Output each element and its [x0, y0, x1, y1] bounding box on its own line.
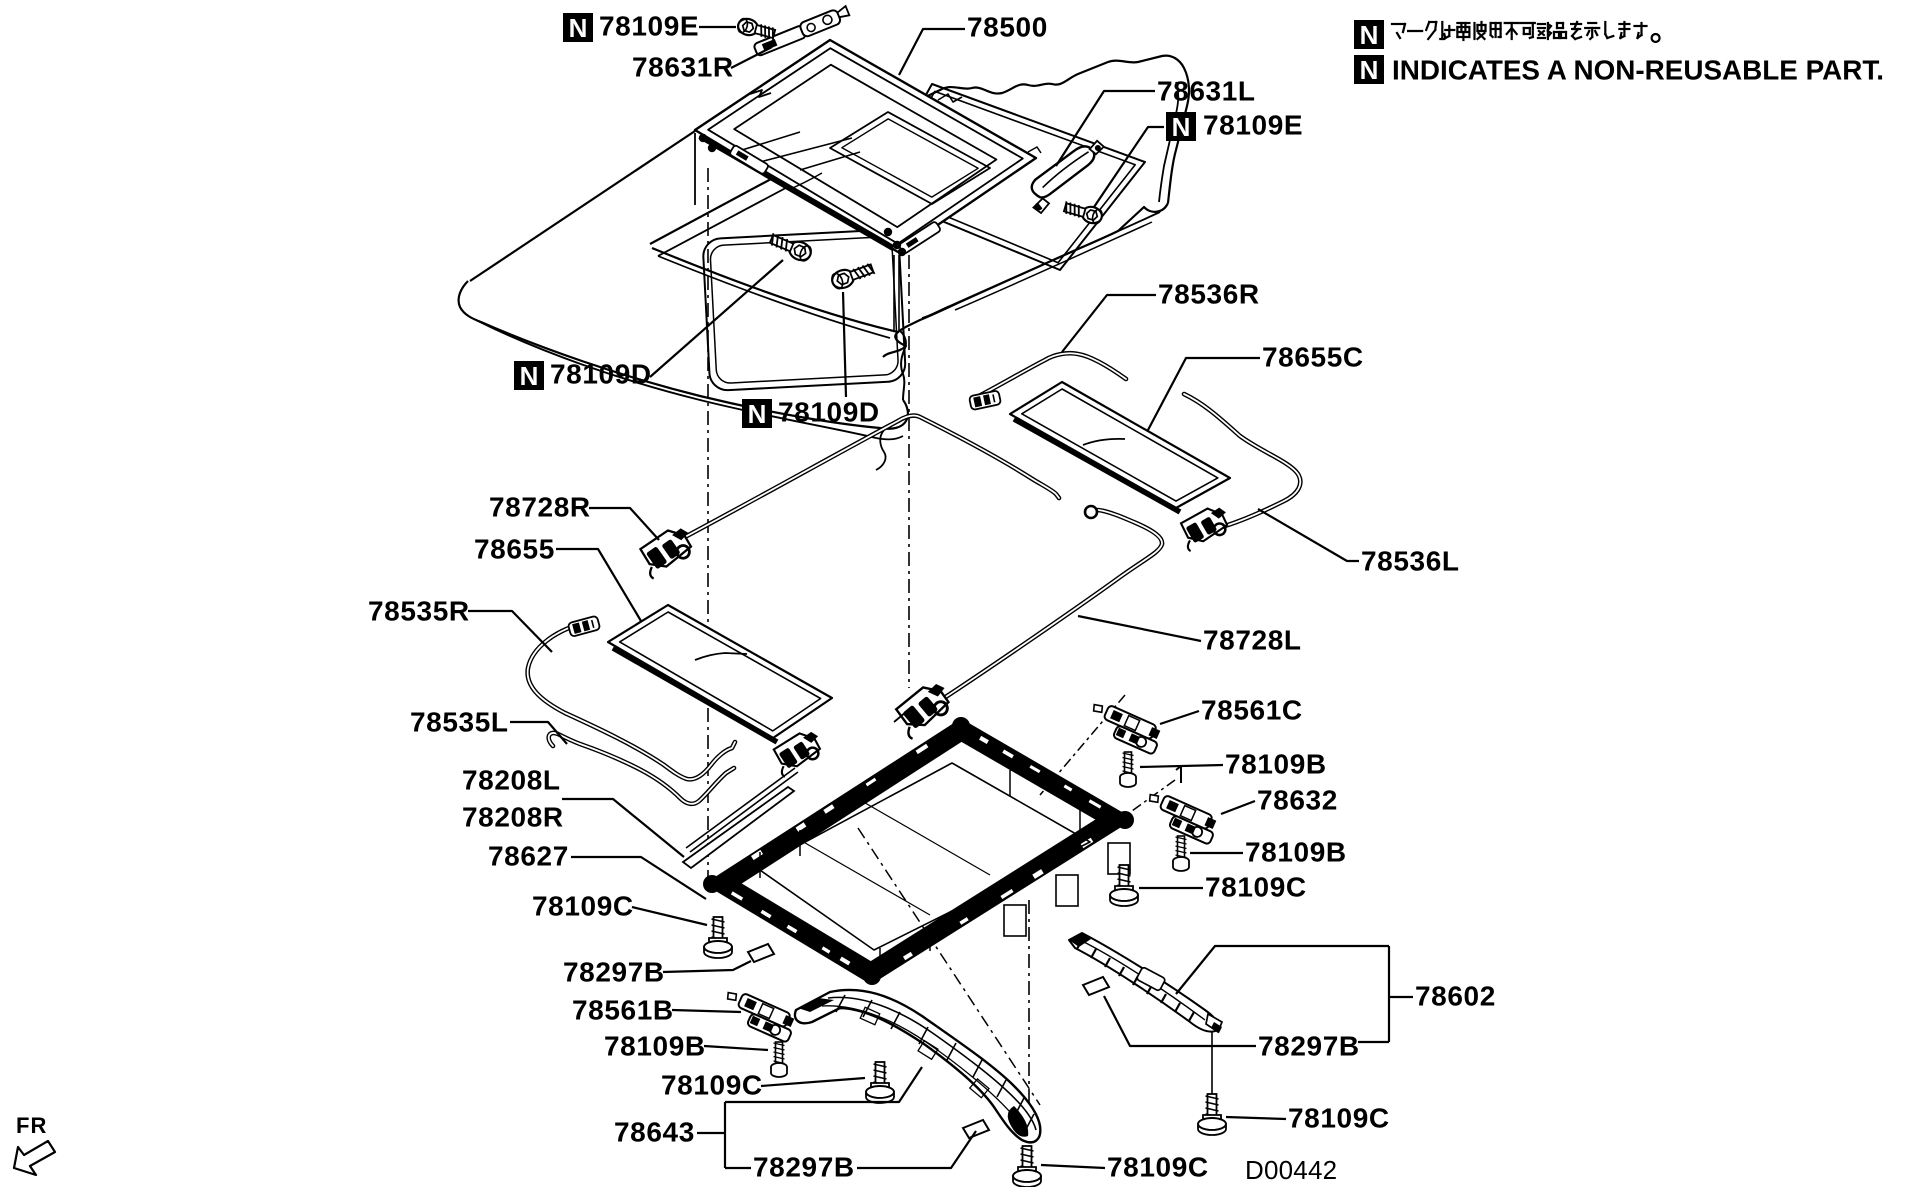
svg-text:78109B: 78109B: [604, 1031, 706, 1062]
svg-text:78109E: 78109E: [1203, 110, 1303, 141]
svg-text:78208L: 78208L: [462, 765, 561, 796]
svg-text:78535R: 78535R: [368, 596, 470, 627]
svg-text:78109E: 78109E: [599, 11, 699, 42]
svg-text:78728R: 78728R: [489, 492, 591, 523]
svg-text:78643: 78643: [614, 1117, 695, 1148]
svg-text:78602: 78602: [1415, 981, 1496, 1012]
svg-text:78631R: 78631R: [632, 52, 734, 83]
svg-text:INDICATES A NON-REUSABLE PART.: INDICATES A NON-REUSABLE PART.: [1392, 55, 1884, 86]
svg-text:78109B: 78109B: [1225, 749, 1327, 780]
svg-text:78109B: 78109B: [1245, 837, 1347, 868]
svg-text:78561B: 78561B: [572, 995, 674, 1026]
svg-text:78109C: 78109C: [661, 1070, 763, 1101]
svg-text:78561C: 78561C: [1201, 695, 1303, 726]
svg-text:N: N: [1172, 112, 1191, 142]
svg-text:78536R: 78536R: [1158, 279, 1260, 310]
svg-text:78208R: 78208R: [462, 802, 564, 833]
svg-text:78109C: 78109C: [532, 891, 634, 922]
svg-text:D00442: D00442: [1245, 1155, 1337, 1185]
svg-text:78655C: 78655C: [1262, 342, 1364, 373]
svg-text:78655: 78655: [474, 534, 555, 565]
svg-text:N: N: [520, 361, 539, 391]
svg-text:78109D: 78109D: [550, 359, 652, 390]
svg-text:N: N: [1360, 55, 1379, 85]
svg-text:78536L: 78536L: [1361, 546, 1460, 577]
svg-text:78297B: 78297B: [1258, 1031, 1360, 1062]
svg-text:78109C: 78109C: [1107, 1152, 1209, 1183]
svg-text:78500: 78500: [967, 12, 1048, 43]
svg-text:78728L: 78728L: [1203, 625, 1302, 656]
svg-text:78109C: 78109C: [1288, 1103, 1390, 1134]
svg-text:78109D: 78109D: [778, 397, 880, 428]
svg-text:N: N: [1360, 20, 1379, 50]
svg-text:78631L: 78631L: [1157, 76, 1256, 107]
svg-text:78109C: 78109C: [1205, 872, 1307, 903]
svg-text:78535L: 78535L: [410, 707, 509, 738]
svg-text:N: N: [748, 399, 767, 429]
svg-text:78297B: 78297B: [563, 957, 665, 988]
svg-text:78297B: 78297B: [753, 1152, 855, 1183]
svg-text:78627: 78627: [488, 841, 569, 872]
svg-text:FR: FR: [16, 1113, 47, 1138]
svg-text:78632: 78632: [1257, 785, 1338, 816]
svg-text:N: N: [569, 13, 588, 43]
